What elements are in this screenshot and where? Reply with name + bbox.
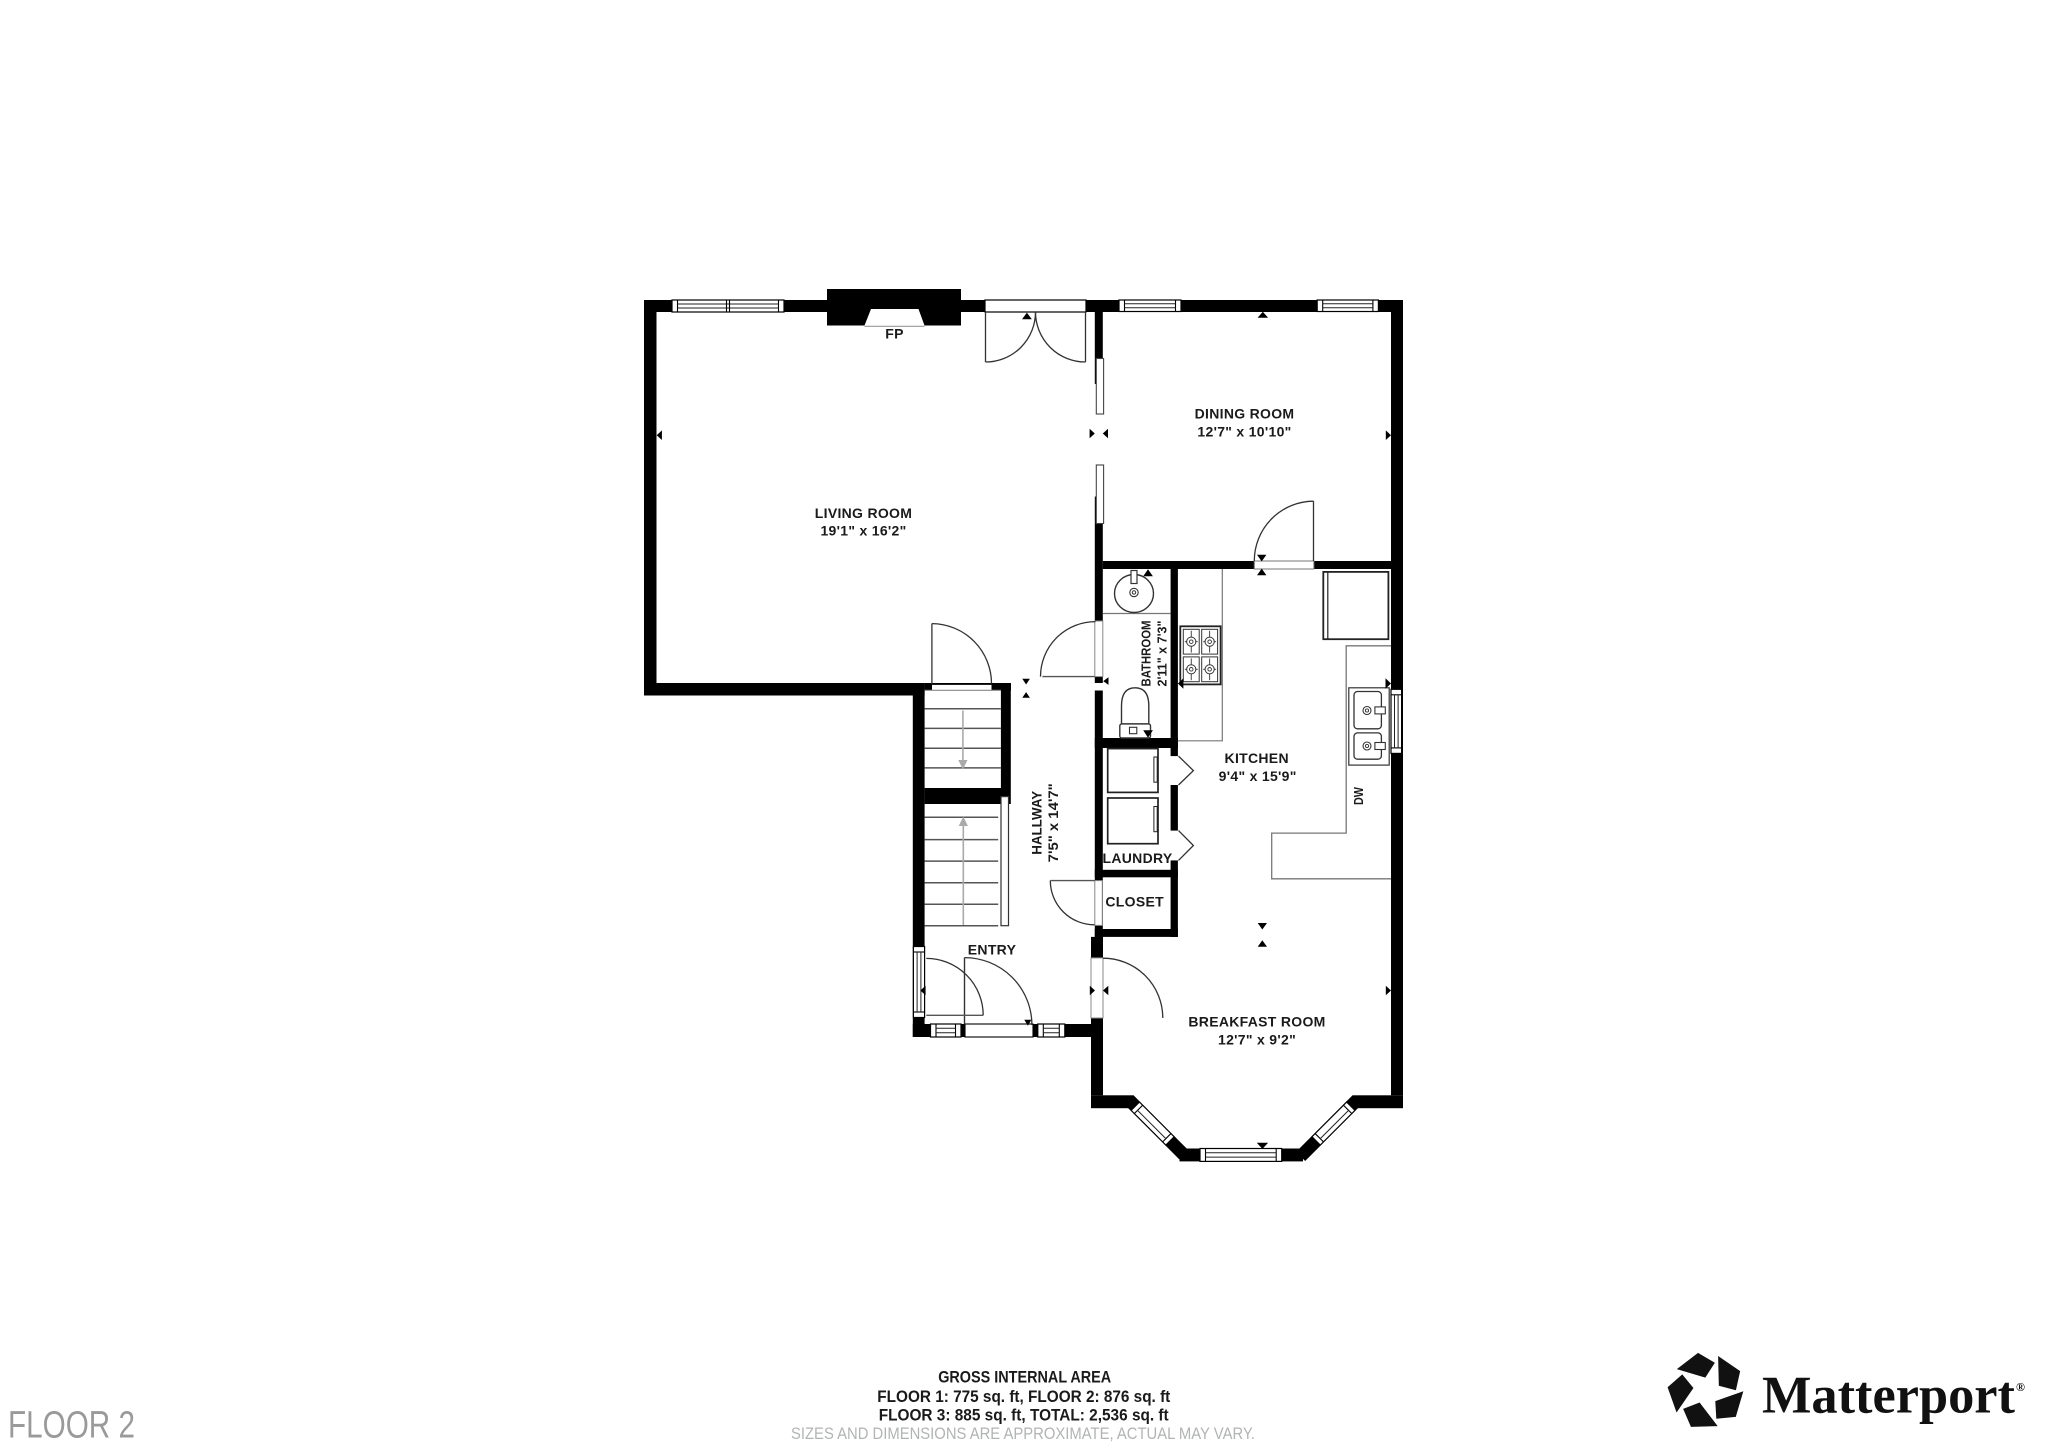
svg-text:FLOOR 2: FLOOR 2	[8, 1405, 135, 1447]
svg-text:KITCHEN: KITCHEN	[1225, 750, 1289, 766]
svg-text:9'4" x 15'9": 9'4" x 15'9"	[1219, 768, 1297, 784]
svg-text:Matterport: Matterport	[1762, 1367, 2015, 1425]
svg-text:®: ®	[2016, 1380, 2025, 1394]
svg-text:7'5" x 14'7": 7'5" x 14'7"	[1045, 783, 1061, 862]
svg-text:FP: FP	[885, 326, 904, 342]
svg-text:FLOOR 1: 775 sq. ft, FLOOR 2:: FLOOR 1: 775 sq. ft, FLOOR 2: 876 sq. ft	[877, 1387, 1170, 1406]
svg-text:12'7" x 9'2": 12'7" x 9'2"	[1218, 1032, 1296, 1048]
svg-text:12'7" x 10'10": 12'7" x 10'10"	[1197, 424, 1291, 440]
svg-text:FLOOR 3: 885 sq. ft, TOTAL: 2,: FLOOR 3: 885 sq. ft, TOTAL: 2,536 sq. ft	[879, 1406, 1169, 1425]
svg-text:CLOSET: CLOSET	[1105, 894, 1164, 910]
svg-text:BREAKFAST ROOM: BREAKFAST ROOM	[1188, 1014, 1325, 1030]
svg-text:19'1" x 16'2": 19'1" x 16'2"	[820, 523, 906, 539]
svg-text:2'11" x 7'3": 2'11" x 7'3"	[1155, 621, 1170, 687]
svg-text:HALLWAY: HALLWAY	[1029, 790, 1045, 855]
svg-text:SIZES AND DIMENSIONS ARE APPRO: SIZES AND DIMENSIONS ARE APPROXIMATE, AC…	[791, 1424, 1255, 1443]
svg-text:DW: DW	[1351, 786, 1366, 805]
svg-text:LIVING ROOM: LIVING ROOM	[815, 505, 912, 521]
svg-text:DINING ROOM: DINING ROOM	[1195, 406, 1295, 422]
svg-text:BATHROOM: BATHROOM	[1138, 621, 1153, 687]
svg-text:ENTRY: ENTRY	[968, 942, 1017, 958]
svg-text:LAUNDRY: LAUNDRY	[1102, 850, 1172, 866]
svg-text:GROSS INTERNAL AREA: GROSS INTERNAL AREA	[938, 1367, 1111, 1386]
